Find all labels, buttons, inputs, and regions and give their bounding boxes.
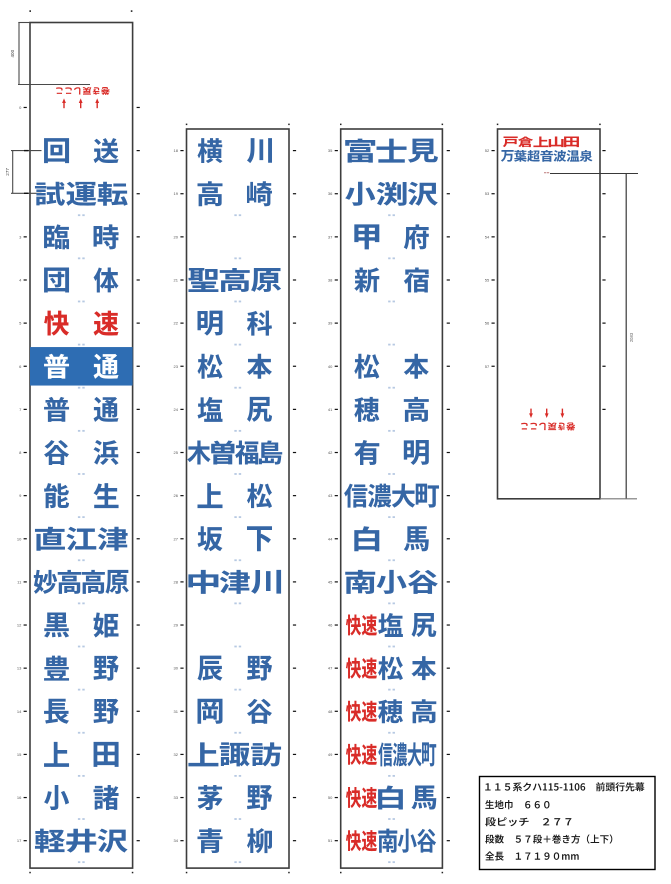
svg-text:57: 57 [485, 364, 490, 369]
svg-text:51: 51 [328, 838, 333, 843]
svg-text:47: 47 [328, 666, 333, 671]
svg-text:39: 39 [328, 321, 333, 326]
svg-text:56: 56 [485, 321, 490, 326]
svg-text:24: 24 [174, 407, 179, 412]
svg-text:17: 17 [17, 838, 22, 843]
svg-text:7: 7 [19, 407, 22, 412]
svg-text:3: 3 [19, 234, 22, 239]
svg-text:28: 28 [174, 579, 179, 584]
svg-text:27: 27 [174, 536, 179, 541]
svg-text:45: 45 [328, 579, 333, 584]
svg-text:8: 8 [19, 450, 22, 455]
svg-text:53: 53 [485, 191, 490, 196]
svg-text:37: 37 [328, 234, 333, 239]
svg-text:19: 19 [174, 191, 179, 196]
svg-text:41: 41 [328, 407, 333, 412]
svg-text:23: 23 [174, 364, 179, 369]
svg-text:9: 9 [19, 493, 22, 498]
svg-text:4: 4 [19, 277, 22, 282]
svg-text:0: 0 [19, 105, 22, 110]
svg-text:16: 16 [17, 795, 22, 800]
svg-text:15: 15 [17, 752, 22, 757]
svg-text:46: 46 [328, 623, 333, 628]
svg-text:34: 34 [174, 838, 179, 843]
svg-text:49: 49 [328, 752, 333, 757]
svg-text:2083: 2083 [629, 332, 634, 342]
svg-text:5: 5 [19, 321, 22, 326]
svg-text:30: 30 [174, 666, 179, 671]
svg-text:20: 20 [174, 234, 179, 239]
svg-text:42: 42 [328, 450, 333, 455]
svg-text:40: 40 [328, 364, 333, 369]
svg-text:14: 14 [17, 709, 22, 714]
svg-text:52: 52 [485, 148, 490, 153]
svg-text:10: 10 [17, 536, 22, 541]
svg-text:29: 29 [174, 623, 179, 628]
svg-text:18: 18 [174, 148, 179, 153]
svg-text:26: 26 [174, 493, 179, 498]
svg-text:6: 6 [19, 364, 22, 369]
svg-text:54: 54 [485, 234, 490, 239]
svg-text:50: 50 [328, 795, 333, 800]
svg-text:36: 36 [328, 191, 333, 196]
svg-text:13: 13 [17, 666, 22, 671]
svg-text:22: 22 [174, 321, 179, 326]
svg-text:31: 31 [174, 709, 179, 714]
svg-text:12: 12 [17, 623, 22, 628]
svg-text:32: 32 [174, 752, 179, 757]
svg-text:43: 43 [328, 493, 333, 498]
svg-text:33: 33 [174, 795, 179, 800]
svg-text:21: 21 [174, 277, 179, 282]
svg-text:44: 44 [328, 536, 333, 541]
svg-text:25: 25 [174, 450, 179, 455]
svg-text:400: 400 [10, 49, 15, 57]
svg-text:55: 55 [485, 277, 490, 282]
svg-text:277: 277 [5, 168, 10, 176]
svg-text:38: 38 [328, 277, 333, 282]
svg-text:48: 48 [328, 709, 333, 714]
svg-text:35: 35 [328, 148, 333, 153]
svg-text:11: 11 [17, 579, 22, 584]
